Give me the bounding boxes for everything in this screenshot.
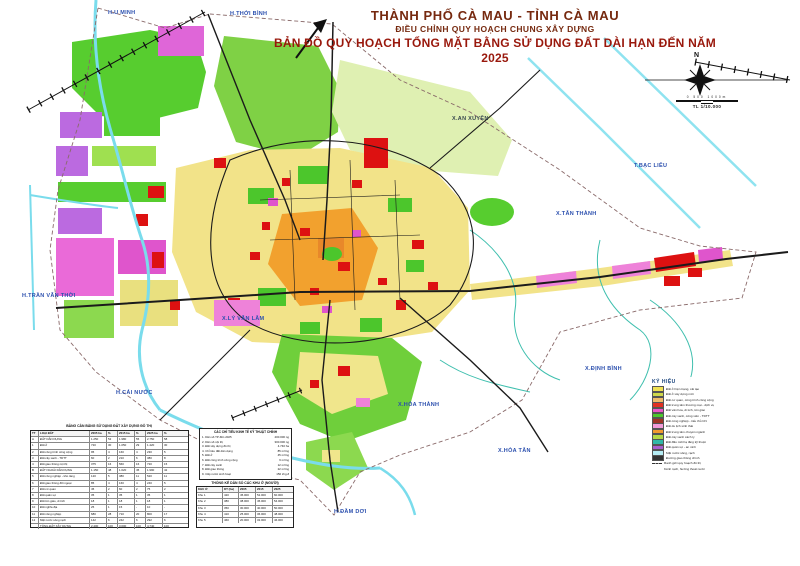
kpi-items: 1. Dân số TP đến 2025 400.000 ng 2. Dân … <box>202 435 289 476</box>
table-cell: Khu 4 <box>197 512 223 517</box>
table-cell: 2 <box>163 487 174 492</box>
legend-item-label: Đất đầu mối hạ tầng kỹ thuật <box>666 440 706 444</box>
table-row: AĐẤT DÂN DỤNG1.250521.980552.75058 <box>31 436 188 442</box>
table-cell: 17 <box>163 512 174 517</box>
table-cell: 35 <box>118 493 135 498</box>
table-cell: 1 <box>163 499 174 504</box>
table-cell: 11 <box>31 512 39 517</box>
legend-swatch <box>652 467 662 471</box>
table-cell: 380 <box>223 499 239 504</box>
population-table: KHU ỞDT (ha)200520152025 Khu 142045.0005… <box>196 486 294 528</box>
table-cell: 142 <box>90 518 107 523</box>
table-cell: 1 <box>135 499 146 504</box>
label-commune-an-xuyen: X.AN XUYÊN <box>452 116 489 122</box>
table-cell: 52.000 <box>256 493 273 498</box>
table-cell: Đất quân sự <box>39 493 90 498</box>
label-commune-tan-thanh: X.TÂN THÀNH <box>556 211 597 217</box>
table-row: 3Đất cây xanh - TDTT60221063808 <box>31 455 188 461</box>
table-cell: 10 <box>146 505 163 510</box>
kpi-item: 9. Cấp nước sinh hoạt 150 l/ng.đ <box>202 472 289 477</box>
table-cell: % <box>163 431 174 436</box>
table-cell: 380 <box>146 456 163 461</box>
table-cell: 25.000 <box>239 512 256 517</box>
table-cell: Đất nghĩa địa <box>39 505 90 510</box>
table-cell: 420 <box>223 493 239 498</box>
table-cell: 160 <box>118 481 135 486</box>
table-cell: 45 <box>90 487 107 492</box>
table-cell: 52 <box>107 437 118 442</box>
table-cell: 5 <box>107 474 118 479</box>
table-cell: 2 <box>107 456 118 461</box>
table-cell: 45.000 <box>239 493 256 498</box>
table-cell: 1.050 <box>118 443 135 448</box>
table-cell: 2 <box>135 487 146 492</box>
table-row: 5Đất công nghiệp - kho tàng1205380115201… <box>31 473 188 479</box>
table-row: 1Đất ở720301.050291.42030 <box>31 442 188 448</box>
scale-bar-graphic <box>676 100 738 102</box>
label-commune-hoa-tan: X.HÒA TÂN <box>498 448 531 454</box>
table-cell: Đất cơ quan <box>39 487 90 492</box>
table-cell: 6 <box>163 518 174 523</box>
table-cell: - <box>163 505 174 510</box>
table-cell: 9 <box>31 499 39 504</box>
table-cell: 2.750 <box>146 437 163 442</box>
table-row: 10Đất nghĩa địa25115-10- <box>31 504 188 510</box>
table-cell: 28 <box>107 512 118 517</box>
table-cell: 36.000 <box>256 512 273 517</box>
scale-ratio: TL 1/10.000 <box>668 104 746 109</box>
table-cell: 680 <box>90 512 107 517</box>
table-cell: 242 <box>118 518 135 523</box>
table-cell: Đất ở <box>39 443 90 448</box>
compass-rose-icon <box>684 64 716 96</box>
label-commune-hoa-thanh: X.HÒA THÀNH <box>398 402 439 408</box>
table-cell: 520 <box>146 474 163 479</box>
table-cell: 350 <box>223 506 239 511</box>
table-cell: 16 <box>135 462 146 467</box>
legend-item-label: Đất ở xây dựng mới <box>666 392 694 396</box>
table-cell: 160 <box>118 450 135 455</box>
table-cell: 3.600 <box>118 524 135 529</box>
table-cell: 42 <box>163 468 174 473</box>
table-cell: 32.000 <box>256 518 273 523</box>
table-cell: 1.980 <box>118 437 135 442</box>
table-cell: 38.000 <box>239 499 256 504</box>
table-cell: ĐẤT DÂN DỤNG <box>39 437 90 442</box>
table-cell: Đất giao thông đối ngoại <box>39 481 90 486</box>
table-cell: 10 <box>31 505 39 510</box>
legend-swatch <box>652 455 664 461</box>
legend-item-label: Đất công nghiệp - tiểu thủ CN <box>666 419 707 423</box>
table-row: 4Đất giao thông nội thị375165601672015 <box>31 461 188 467</box>
table-cell: 720 <box>146 462 163 467</box>
table-cell: 15 <box>163 462 174 467</box>
scale-bar: 0 500 1000m TL 1/10.000 <box>668 95 746 109</box>
legend-item-label: Đất ở hiện trạng, cải tạo <box>666 387 699 391</box>
label-district-cai-nuoc: H.CÁI NƯỚC <box>116 390 153 396</box>
table-cell: 4.740 <box>146 524 163 529</box>
table-cell: Đất tôn giáo, di tích <box>39 499 90 504</box>
table-cell: A <box>31 437 39 442</box>
table-cell: 2015 <box>256 487 273 492</box>
table-cell: % <box>135 431 146 436</box>
table-row: TỔNG ĐẤT XÂY DỰNG2.4001003.6001004.74010… <box>31 523 188 529</box>
table-cell: 2005 ha <box>90 431 107 436</box>
table-cell: 20 <box>135 512 146 517</box>
table-cell: 710 <box>118 512 135 517</box>
table-cell: LOẠI ĐẤT <box>39 431 90 436</box>
table-cell: 4 <box>107 481 118 486</box>
table-cell: 230 <box>146 450 163 455</box>
map-title-block: THÀNH PHỐ CÀ MAU - TỈNH CÀ MAU ĐIỀU CHỈN… <box>270 8 720 66</box>
table-cell: Đất cây xanh - TDTT <box>39 456 90 461</box>
table-cell: 20.000 <box>239 518 256 523</box>
kpi-panel: CÁC CHỈ TIÊU KINH TẾ KỸ THUẬT CHÍNH 1. D… <box>199 428 292 480</box>
table-cell: 11 <box>135 474 146 479</box>
table-cell: 240 <box>146 481 163 486</box>
table-cell: ĐẤT NGOÀI DÂN DỤNG <box>39 468 90 473</box>
table-cell: 60 <box>118 487 135 492</box>
table-cell: 1 <box>163 493 174 498</box>
table-cell: 4 <box>135 450 146 455</box>
table-cell: 48 <box>107 468 118 473</box>
landuse-table-body: AĐẤT DÂN DỤNG1.250521.980552.75058 1Đất … <box>31 436 188 529</box>
table-cell: 6 <box>135 518 146 523</box>
table-cell: 1.620 <box>118 468 135 473</box>
label-province-bac-lieu: T.BẠC LIÊU <box>634 163 667 169</box>
legend-panel: KÝ HIỆU Đất ở hiện trạng, cải tạo Đất ở … <box>649 377 756 473</box>
landuse-table-title: BẢNG CÂN BẰNG SỬ DỤNG ĐẤT XÂY DỰNG ĐÔ TH… <box>34 424 184 428</box>
kpi-value: 150 l/ng.đ <box>276 472 289 477</box>
table-cell: 120 <box>90 474 107 479</box>
table-cell: 75 <box>146 487 163 492</box>
table-cell: 460 <box>223 518 239 523</box>
table-cell: 1 <box>107 505 118 510</box>
zones-center <box>172 138 470 346</box>
table-cell: 11 <box>163 474 174 479</box>
table-cell: 1.150 <box>90 468 107 473</box>
table-cell: 95 <box>90 450 107 455</box>
map-title-line3: BẢN ĐỒ QUY HOẠCH TỔNG MẶT BẰNG SỬ DỤNG Đ… <box>270 36 720 66</box>
table-cell: - <box>135 505 146 510</box>
north-label: N <box>694 52 699 59</box>
table-cell: Khu 2 <box>197 499 223 504</box>
table-cell: 60 <box>90 456 107 461</box>
population-table-header: KHU ỞDT (ha)200520152025 <box>197 487 293 492</box>
table-cell: 1 <box>135 493 146 498</box>
table-cell: % <box>107 431 118 436</box>
table-cell: 7 <box>31 487 39 492</box>
table-cell: 30 <box>107 443 118 448</box>
legend-title: KÝ HIỆU <box>652 379 753 385</box>
table-cell: 6 <box>31 481 39 486</box>
table-cell: 6 <box>107 518 118 523</box>
legend-item-label: Đất quân sự - an ninh <box>666 445 696 449</box>
table-cell: 50.000 <box>273 506 290 511</box>
table-cell: 100 <box>107 524 118 529</box>
landuse-table: TTLOẠI ĐẤT2005 ha%2015 ha%2025 ha% AĐẤT … <box>30 430 189 528</box>
legend-item-label: Đất cây xanh cách ly <box>666 435 695 439</box>
map-title-line1: THÀNH PHỐ CÀ MAU - TỈNH CÀ MAU <box>270 8 720 24</box>
table-cell: DT (ha) <box>223 487 239 492</box>
legend-swatch <box>652 463 662 464</box>
table-cell: 30 <box>163 443 174 448</box>
table-cell: Mặt nước sông rạch <box>39 518 90 523</box>
table-row: 12Mặt nước sông rạch142624262926 <box>31 517 188 523</box>
label-commune-ly-van-lam: X.LÝ VĂN LÂM <box>222 316 264 322</box>
table-row: Khu 546020.00032.00046.000 <box>197 517 293 523</box>
table-cell: 18 <box>118 499 135 504</box>
label-commune-dinh-binh: X.ĐỊNH BÌNH <box>585 366 622 372</box>
legend-items: Đất ở hiện trạng, cải tạo Đất ở xây dựng… <box>652 387 753 472</box>
table-cell: 5 <box>31 474 39 479</box>
label-district-u-minh: H.U MINH <box>108 10 135 16</box>
table-row: 2Đất công trình công cộng95416042305 <box>31 449 188 455</box>
table-cell: 2 <box>107 487 118 492</box>
table-cell: 2015 ha <box>118 431 135 436</box>
table-cell: TT <box>31 431 39 436</box>
table-cell: 16 <box>107 462 118 467</box>
legend-item-label: Đất cơ quan, công trình công cộng <box>666 398 714 402</box>
table-cell: 5 <box>163 450 174 455</box>
legend-item-label: Đất trung tâm thương mại - dịch vụ <box>666 403 714 407</box>
table-cell: 18 <box>146 499 163 504</box>
table-cell: 48.000 <box>273 512 290 517</box>
table-cell: 29 <box>135 443 146 448</box>
table-cell: 85 <box>90 481 107 486</box>
table-cell <box>31 524 39 529</box>
table-cell: 100 <box>163 524 174 529</box>
legend-item-label: Đất cây xanh, công viên - TDTT <box>666 414 710 418</box>
scale-numbers: 0 500 1000m <box>668 95 746 99</box>
table-row: Khu 142045.00052.00060.000 <box>197 492 293 498</box>
kpi-title: CÁC CHỈ TIÊU KINH TẾ KỸ THUẬT CHÍNH <box>202 430 289 434</box>
table-cell: 210 <box>118 456 135 461</box>
table-cell: 100 <box>135 524 146 529</box>
population-table-title: THỐNG KÊ DÂN SỐ CÁC KHU Ở (NGƯỜI) <box>200 481 290 485</box>
table-cell: 375 <box>90 462 107 467</box>
table-cell: 8 <box>163 456 174 461</box>
table-cell: TỔNG ĐẤT XÂY DỰNG <box>39 524 90 529</box>
table-cell: 58 <box>163 437 174 442</box>
table-cell: 45.000 <box>256 499 273 504</box>
table-cell: 2.400 <box>90 524 107 529</box>
legend-item-label: Kênh rạch, hướng thoát nước <box>664 467 705 471</box>
table-cell: 35 <box>90 493 107 498</box>
table-cell: Khu 3 <box>197 506 223 511</box>
table-cell: 1.420 <box>146 443 163 448</box>
table-row: 9Đất tôn giáo, di tích181181181 <box>31 498 188 504</box>
table-cell: 1 <box>107 499 118 504</box>
table-cell: 1.250 <box>90 437 107 442</box>
legend-item-label: Mặt nước sông, rạch <box>666 451 695 455</box>
planning-map-page: THÀNH PHỐ CÀ MAU - TỈNH CÀ MAU ĐIỀU CHỈN… <box>0 0 800 566</box>
table-cell: 6 <box>135 456 146 461</box>
table-cell: 8 <box>31 493 39 498</box>
label-district-thoi-binh: H.THỚI BÌNH <box>230 11 267 17</box>
map-title-line2: ĐIỀU CHỈNH QUY HOẠCH CHUNG XÂY DỰNG <box>270 24 720 35</box>
table-cell: 35 <box>146 493 163 498</box>
label-district-dam-doi: H.ĐẦM DƠI <box>334 509 366 515</box>
table-cell: 4 <box>31 462 39 467</box>
table-cell: 46.000 <box>273 518 290 523</box>
table-cell: 30.000 <box>239 506 256 511</box>
table-row: Khu 335030.00040.00050.000 <box>197 505 293 511</box>
table-cell: 2 <box>31 450 39 455</box>
population-table-body: Khu 142045.00052.00060.000 Khu 238038.00… <box>197 492 293 523</box>
table-cell: 4 <box>135 481 146 486</box>
table-cell: 54.000 <box>273 499 290 504</box>
table-cell: Khu 1 <box>197 493 223 498</box>
table-row: BĐẤT NGOÀI DÂN DỤNG1.150481.620451.99042 <box>31 467 188 473</box>
table-cell: 560 <box>118 462 135 467</box>
table-cell: Đất công nghiệp - kho tàng <box>39 474 90 479</box>
table-cell: 800 <box>146 512 163 517</box>
table-cell: 2025 ha <box>146 431 163 436</box>
table-cell: 18 <box>90 499 107 504</box>
table-cell: Đất giao thông nội thị <box>39 462 90 467</box>
table-cell: Khu 5 <box>197 518 223 523</box>
legend-item-label: Đất trung tâm chuyên ngành <box>666 430 705 434</box>
table-row: Khu 238038.00045.00054.000 <box>197 498 293 504</box>
table-cell: Đất nông nghiệp <box>39 512 90 517</box>
table-cell: Đất công trình công cộng <box>39 450 90 455</box>
table-cell: 410 <box>223 512 239 517</box>
legend-item-label: Đường giao thông chính <box>666 456 700 460</box>
table-cell: 1 <box>107 493 118 498</box>
table-row: 7Đất cơ quan452602752 <box>31 486 188 492</box>
table-cell: 3 <box>31 456 39 461</box>
kpi-label: 9. Cấp nước sinh hoạt <box>202 472 231 477</box>
landuse-table-header: TTLOẠI ĐẤT2005 ha%2015 ha%2025 ha% <box>31 431 188 436</box>
table-cell: 40.000 <box>256 506 273 511</box>
table-cell: KHU Ở <box>197 487 223 492</box>
table-cell: 15 <box>118 505 135 510</box>
table-cell: 25 <box>90 505 107 510</box>
table-cell: 292 <box>146 518 163 523</box>
table-row: Khu 441025.00036.00048.000 <box>197 511 293 517</box>
table-row: 11Đất nông nghiệp680287102080017 <box>31 511 188 517</box>
table-cell: 55 <box>135 437 146 442</box>
table-cell: B <box>31 468 39 473</box>
table-cell: 1.990 <box>146 468 163 473</box>
table-cell: 12 <box>31 518 39 523</box>
table-cell: 720 <box>90 443 107 448</box>
table-cell: 2025 <box>273 487 290 492</box>
legend-item-label: Đất văn hóa, di tích, tôn giáo <box>666 408 705 412</box>
legend-item-label: Đất du lịch sinh thái <box>666 424 693 428</box>
table-cell: 1 <box>31 443 39 448</box>
legend-item-label: Ranh giới quy hoạch đô thị <box>664 461 701 465</box>
table-cell: 2005 <box>239 487 256 492</box>
table-cell: 380 <box>118 474 135 479</box>
table-cell: 45 <box>135 468 146 473</box>
table-cell: 4 <box>107 450 118 455</box>
legend-item: Kênh rạch, hướng thoát nước <box>652 466 753 471</box>
label-district-tran-van-thoi: H.TRẦN VĂN THỜI <box>22 293 76 299</box>
table-cell: 5 <box>163 481 174 486</box>
table-cell: 60.000 <box>273 493 290 498</box>
table-row: 6Đất giao thông đối ngoại85416042405 <box>31 480 188 486</box>
table-row: 8Đất quân sự351351351 <box>31 492 188 498</box>
